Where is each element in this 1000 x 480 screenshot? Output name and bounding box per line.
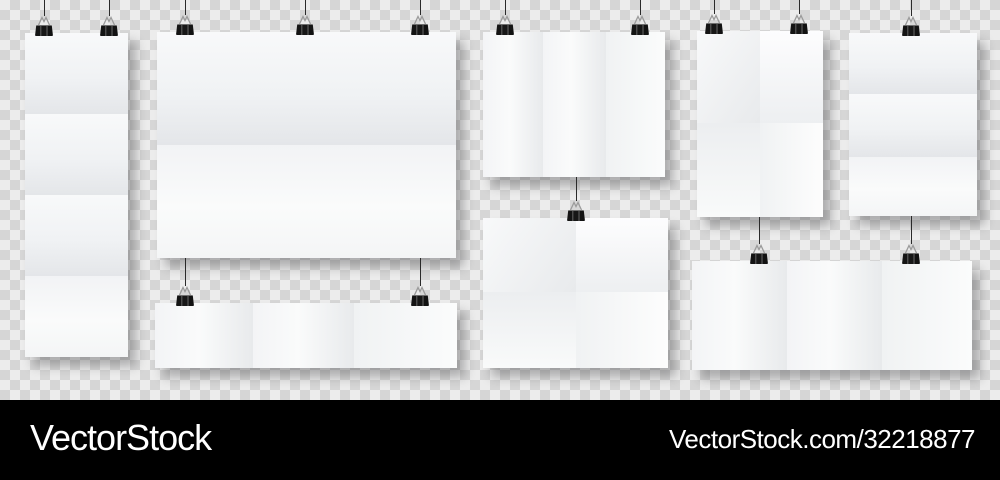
hanging-string	[911, 0, 912, 16]
clip-wire-handles-icon	[178, 15, 192, 24]
paper-panel	[787, 261, 882, 370]
hanging-string	[420, 258, 421, 286]
paper-panel	[882, 261, 972, 370]
paper-panel	[157, 145, 456, 258]
paper-panel	[697, 123, 760, 217]
paper-panel	[483, 218, 576, 292]
binder-clip-icon	[750, 244, 768, 263]
poster-wide-strip-center	[155, 303, 457, 368]
binder-clip-icon	[902, 244, 920, 263]
clip-wire-handles-icon	[413, 15, 427, 24]
binder-clip-icon	[176, 15, 194, 34]
binder-clip-icon	[567, 201, 585, 220]
poster-wide-bottom-right	[692, 261, 972, 370]
clip-wire-handles-icon	[904, 16, 918, 25]
watermark-bar: VectorStock VectorStock.com/32218877	[0, 400, 1000, 480]
clip-wire-handles-icon	[178, 286, 192, 295]
clip-wire-handles-icon	[792, 14, 806, 23]
clip-wire-handles-icon	[102, 16, 116, 25]
clip-wire-handles-icon	[498, 15, 512, 24]
hanging-string	[714, 0, 715, 14]
hanging-string	[759, 217, 760, 244]
clip-body	[790, 23, 808, 34]
paper-panel	[543, 32, 606, 177]
paper-panel	[25, 33, 128, 114]
clip-body	[496, 24, 514, 35]
poster-cross-fold-middle	[483, 218, 668, 368]
paper-panel	[253, 303, 354, 368]
paper-panel	[760, 123, 823, 217]
clip-wire-handles-icon	[633, 15, 647, 24]
poster-trifold-top-middle	[483, 32, 665, 177]
clip-body	[176, 295, 194, 306]
clip-wire-handles-icon	[569, 201, 583, 210]
hanging-string	[44, 0, 45, 16]
paper-panel	[25, 276, 128, 357]
paper-panel	[483, 292, 576, 368]
binder-clip-icon	[35, 16, 53, 35]
binder-clip-icon	[176, 286, 194, 305]
clip-body	[411, 24, 429, 35]
hanging-string	[305, 0, 306, 15]
paper-panel	[849, 94, 977, 157]
binder-clip-icon	[902, 16, 920, 35]
clip-wire-handles-icon	[707, 14, 721, 23]
poster-tall-right	[849, 33, 977, 216]
clip-body	[705, 23, 723, 34]
clip-body	[176, 24, 194, 35]
binder-clip-icon	[411, 286, 429, 305]
hanging-string	[576, 177, 577, 201]
hanging-string	[185, 258, 186, 286]
paper-panel	[354, 303, 457, 368]
clip-body	[296, 24, 314, 35]
binder-clip-icon	[631, 15, 649, 34]
binder-clip-icon	[790, 14, 808, 33]
poster-tall-left	[25, 33, 128, 357]
image-url-text: VectorStock.com/32218877	[669, 426, 975, 454]
paper-panel	[760, 31, 823, 123]
clip-wire-handles-icon	[904, 244, 918, 253]
hanging-string	[109, 0, 110, 16]
clip-wire-handles-icon	[752, 244, 766, 253]
clip-body	[750, 253, 768, 264]
vectorstock-logo: VectorStock	[30, 420, 211, 460]
hanging-string	[420, 0, 421, 15]
paper-panel	[157, 32, 456, 145]
paper-panel	[483, 32, 543, 177]
binder-clip-icon	[411, 15, 429, 34]
clip-wire-handles-icon	[413, 286, 427, 295]
clip-body	[631, 24, 649, 35]
paper-panel	[849, 157, 977, 216]
poster-cross-fold-right-top	[697, 31, 823, 217]
hanging-string	[505, 0, 506, 15]
binder-clip-icon	[100, 16, 118, 35]
hanging-string	[799, 0, 800, 14]
clip-body	[35, 25, 53, 36]
poster-scene	[0, 0, 1000, 400]
paper-panel	[576, 292, 668, 368]
clip-body	[902, 253, 920, 264]
hanging-string	[911, 216, 912, 244]
paper-panel	[25, 195, 128, 276]
binder-clip-icon	[296, 15, 314, 34]
binder-clip-icon	[705, 14, 723, 33]
paper-panel	[25, 114, 128, 195]
clip-body	[100, 25, 118, 36]
hanging-string	[185, 0, 186, 15]
paper-panel	[606, 32, 665, 177]
binder-clip-icon	[496, 15, 514, 34]
poster-large-center	[157, 32, 456, 258]
clip-body	[902, 25, 920, 36]
paper-panel	[692, 261, 787, 370]
hanging-string	[640, 0, 641, 15]
paper-panel	[155, 303, 253, 368]
stock-image-canvas: VectorStock VectorStock.com/32218877	[0, 0, 1000, 480]
clip-body	[411, 295, 429, 306]
paper-panel	[576, 218, 668, 292]
clip-wire-handles-icon	[37, 16, 51, 25]
clip-body	[567, 210, 585, 221]
paper-panel	[849, 33, 977, 94]
paper-panel	[697, 31, 760, 123]
clip-wire-handles-icon	[298, 15, 312, 24]
